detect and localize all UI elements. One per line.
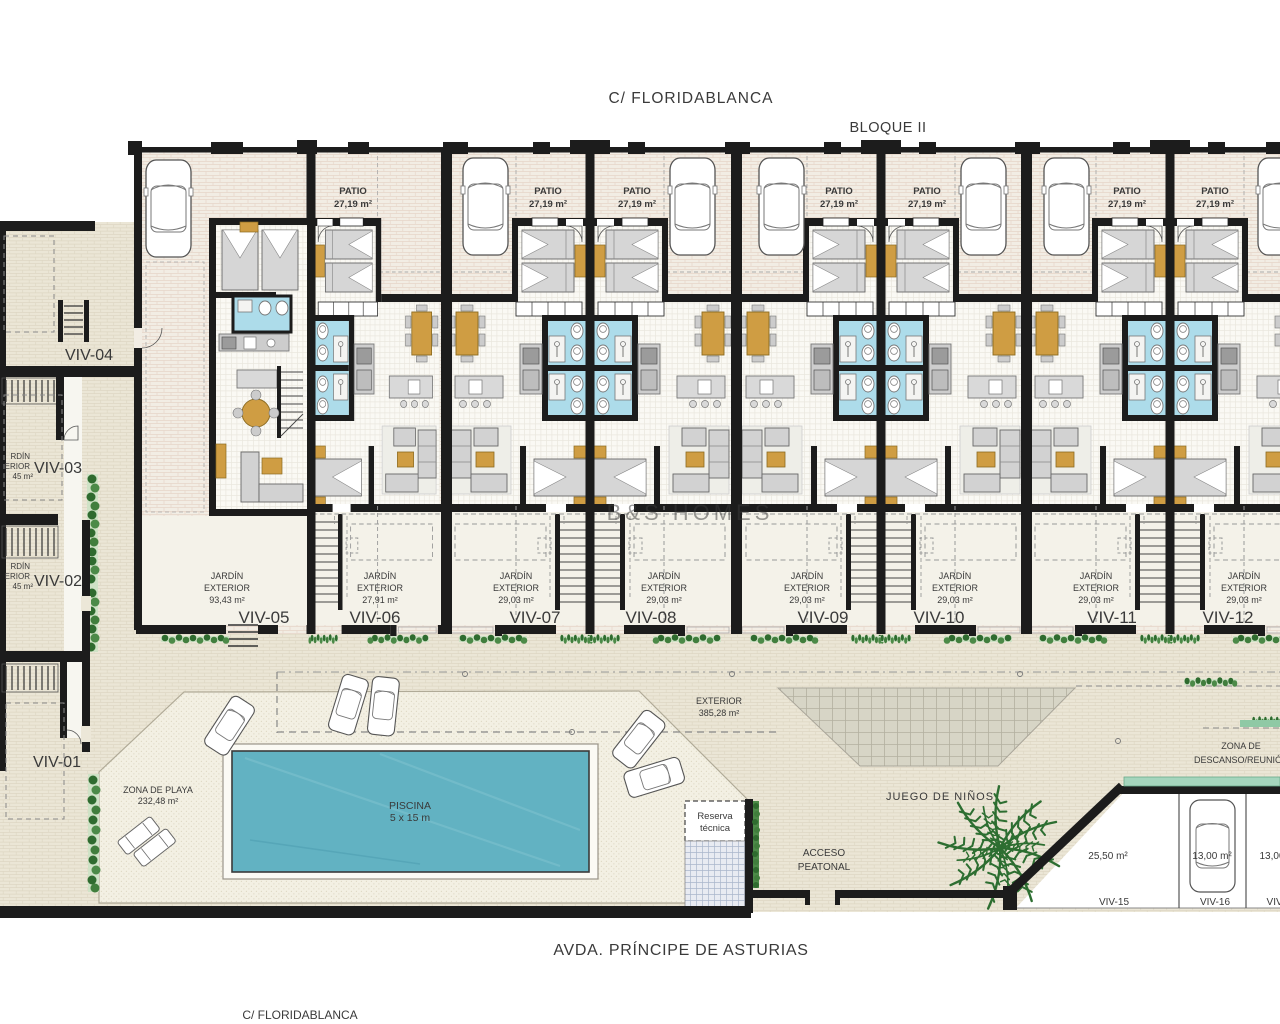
svg-text:JARDÍN: JARDÍN xyxy=(211,571,244,581)
svg-text:EXTERIOR: EXTERIOR xyxy=(1073,583,1120,593)
svg-text:VIV-09: VIV-09 xyxy=(797,608,848,627)
svg-text:JARDÍN: JARDÍN xyxy=(791,571,824,581)
svg-text:VIV-07: VIV-07 xyxy=(509,608,560,627)
svg-text:EXTERIOR: EXTERIOR xyxy=(1221,583,1268,593)
svg-text:27,19 m²: 27,19 m² xyxy=(820,199,858,210)
svg-text:ZONA DE PLAYA: ZONA DE PLAYA xyxy=(123,785,193,795)
svg-text:C/ FLORIDABLANCA: C/ FLORIDABLANCA xyxy=(242,1008,357,1022)
svg-text:JARDÍN: JARDÍN xyxy=(1228,571,1261,581)
svg-text:VIV-15: VIV-15 xyxy=(1099,897,1129,908)
svg-text:27,19 m²: 27,19 m² xyxy=(618,199,656,210)
svg-text:93,43 m²: 93,43 m² xyxy=(209,595,245,605)
svg-text:EXTERIOR: EXTERIOR xyxy=(932,583,979,593)
svg-text:VIV-: VIV- xyxy=(1267,897,1280,908)
svg-text:27,19 m²: 27,19 m² xyxy=(908,199,946,210)
svg-text:VIV-11: VIV-11 xyxy=(1087,608,1137,627)
svg-text:JARDÍN: JARDÍN xyxy=(1080,571,1113,581)
svg-text:13,00: 13,00 xyxy=(1259,851,1280,862)
svg-text:PATIO: PATIO xyxy=(1201,186,1229,197)
svg-text:27,19 m²: 27,19 m² xyxy=(1108,199,1146,210)
svg-text:ACCESO: ACCESO xyxy=(803,848,845,859)
svg-text:DESCANSO/REUNIÓN: DESCANSO/REUNIÓN xyxy=(1194,755,1280,765)
svg-text:VIV-03: VIV-03 xyxy=(34,460,82,477)
svg-text:232,48 m²: 232,48 m² xyxy=(138,796,179,806)
svg-text:JARDÍN: JARDÍN xyxy=(648,571,681,581)
svg-text:29,03 m²: 29,03 m² xyxy=(1078,595,1114,605)
svg-text:PATIO: PATIO xyxy=(339,186,367,197)
svg-text:VIV-06: VIV-06 xyxy=(349,608,400,627)
svg-text:VIV-05: VIV-05 xyxy=(238,608,289,627)
svg-text:VIV-08: VIV-08 xyxy=(625,608,676,627)
svg-text:EXTERIOR: EXTERIOR xyxy=(493,583,540,593)
svg-text:JUEGO DE NIÑOS: JUEGO DE NIÑOS xyxy=(886,790,994,803)
svg-text:AVDA. PRÍNCIPE DE ASTURIAS: AVDA. PRÍNCIPE DE ASTURIAS xyxy=(553,940,808,959)
svg-text:27,19 m²: 27,19 m² xyxy=(529,199,567,210)
svg-text:PATIO: PATIO xyxy=(913,186,941,197)
svg-text:PATIO: PATIO xyxy=(623,186,651,197)
svg-text:JARDÍN: JARDÍN xyxy=(500,571,533,581)
svg-text:VIV-10: VIV-10 xyxy=(913,608,964,627)
svg-text:Reserva: Reserva xyxy=(697,811,733,822)
svg-text:13,00 m²: 13,00 m² xyxy=(1192,851,1232,862)
svg-text:PISCINA: PISCINA xyxy=(389,800,431,812)
svg-text:ERIOR: ERIOR xyxy=(5,462,31,471)
svg-text:27,19 m²: 27,19 m² xyxy=(334,199,372,210)
svg-text:45 m²: 45 m² xyxy=(13,472,34,481)
svg-text:PATIO: PATIO xyxy=(534,186,562,197)
svg-text:EXTERIOR: EXTERIOR xyxy=(784,583,831,593)
svg-text:29,03 m²: 29,03 m² xyxy=(646,595,682,605)
svg-text:RDÍN: RDÍN xyxy=(10,562,30,571)
svg-text:ERIOR: ERIOR xyxy=(5,572,31,581)
svg-text:BLOQUE II: BLOQUE II xyxy=(849,120,926,136)
svg-text:EXTERIOR: EXTERIOR xyxy=(696,696,743,706)
svg-text:JARDÍN: JARDÍN xyxy=(939,571,972,581)
svg-text:RDÍN: RDÍN xyxy=(10,452,30,461)
svg-text:VIV-04: VIV-04 xyxy=(65,347,113,364)
svg-text:ZONA DE: ZONA DE xyxy=(1221,741,1261,751)
svg-text:27,19 m²: 27,19 m² xyxy=(1196,199,1234,210)
svg-text:EXTERIOR: EXTERIOR xyxy=(204,583,251,593)
svg-text:27,91 m²: 27,91 m² xyxy=(362,595,398,605)
svg-text:VIV-02: VIV-02 xyxy=(34,573,82,590)
svg-text:29,03 m²: 29,03 m² xyxy=(1226,595,1262,605)
svg-text:29,03 m²: 29,03 m² xyxy=(789,595,825,605)
svg-text:JARDÍN: JARDÍN xyxy=(364,571,397,581)
svg-text:VIV-12: VIV-12 xyxy=(1202,608,1253,627)
svg-text:385,28 m²: 385,28 m² xyxy=(699,708,740,718)
svg-text:29,03 m²: 29,03 m² xyxy=(498,595,534,605)
svg-text:29,03 m²: 29,03 m² xyxy=(937,595,973,605)
svg-text:B&S HOMES: B&S HOMES xyxy=(607,500,774,525)
svg-text:VIV-01: VIV-01 xyxy=(33,754,81,771)
svg-text:EXTERIOR: EXTERIOR xyxy=(357,583,404,593)
svg-text:5 x 15 m: 5 x 15 m xyxy=(390,812,431,824)
svg-text:EXTERIOR: EXTERIOR xyxy=(641,583,688,593)
svg-text:PATIO: PATIO xyxy=(825,186,853,197)
svg-text:técnica: técnica xyxy=(700,823,731,834)
svg-text:C/ FLORIDABLANCA: C/ FLORIDABLANCA xyxy=(608,90,773,107)
svg-text:45 m²: 45 m² xyxy=(13,582,34,591)
svg-text:PATIO: PATIO xyxy=(1113,186,1141,197)
svg-text:VIV-16: VIV-16 xyxy=(1200,897,1230,908)
svg-text:PEATONAL: PEATONAL xyxy=(798,862,851,873)
svg-text:25,50 m²: 25,50 m² xyxy=(1088,851,1128,862)
